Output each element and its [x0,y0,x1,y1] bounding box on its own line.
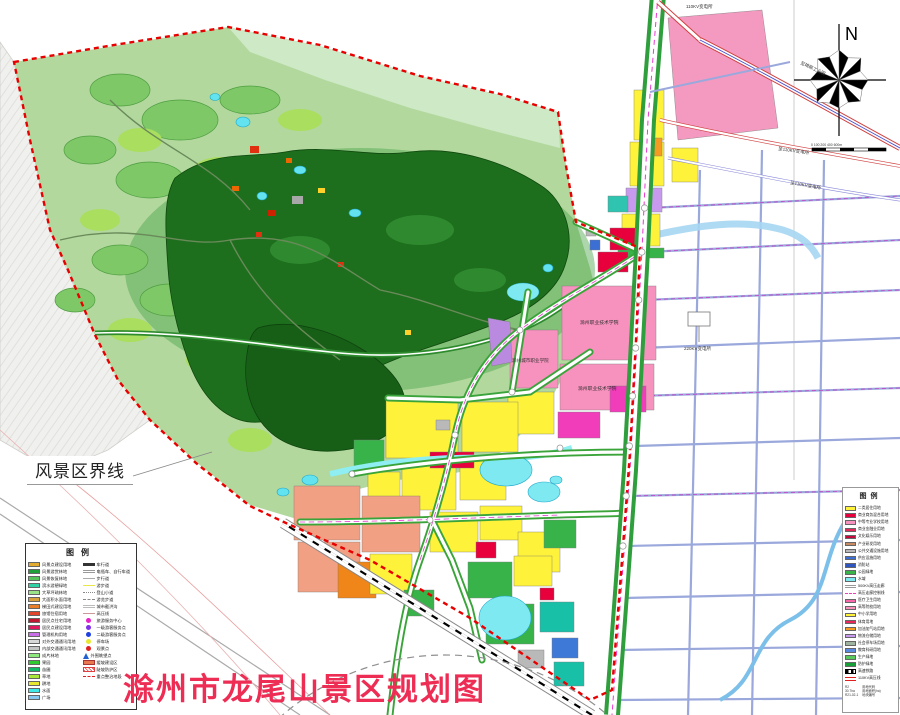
legend-swatch [845,677,856,681]
label-college-2: 滁州职业技术学院 [578,385,617,392]
legend-swatch [28,562,40,567]
legend-item: 管理机构用地 [28,631,80,638]
legend-swatch [845,528,856,533]
legend-swatch [845,641,856,646]
legend-item: 步行道 [83,575,135,582]
legend-swatch [28,569,40,574]
legend-swatch [845,506,856,511]
legend-item-label: 物流仓储用地 [858,634,881,639]
legend-item-label: 游步道 [97,583,110,589]
legend-item-label: 生产绿地 [858,655,873,660]
legend-item: 大面积水面用地 [28,596,80,603]
legend-item: 一级游客服务点 [83,624,135,631]
legend-swatch [28,667,40,672]
substation-box [688,312,710,342]
legend-landuse-title: 图例 [845,489,896,505]
legend-item: 物流仓储用地 [845,633,896,640]
legend-swatch [28,639,40,644]
legend-swatch [28,576,40,581]
legend-item-label: 公共交通设施用地 [858,549,888,554]
legend-item-label: 耕地 [42,681,50,687]
legend-item: 公共交通设施用地 [845,548,896,555]
legend-item: 高速铁路 [845,668,896,675]
legend-item: 果园 [28,659,80,666]
legend-item: 高等院校用地 [845,604,896,611]
legend-swatch [83,605,95,609]
legend-swatch [86,618,91,623]
legend-swatch [845,627,856,632]
legend-swatch [83,667,95,672]
legend-item: 500KV高压走廊 [845,583,896,590]
legend-swatch [845,585,856,589]
legend-item-label: 产业研发用地 [858,542,881,547]
legend-swatch [845,606,856,611]
legend-swatch [86,625,91,630]
label-city-college: 滁州城市职业学院 [512,357,549,364]
legend-item: 居民点建设用地 [28,624,80,631]
legend-item: 登山小道 [83,589,135,596]
legend-item-label: 水域 [858,577,866,582]
legend-item: 高压线 [83,610,135,617]
legend-item: 商业商务混合用地 [845,512,896,519]
legend-swatch [28,590,40,595]
compass-rose [794,24,886,136]
legend-item-label: 大草坪疏林地 [42,590,67,596]
legend-swatch [845,542,856,547]
legend-item-label: 对外交通通讯用地 [42,639,76,645]
legend-item-label: 广场 [42,695,50,701]
legend-item-label: 中小学用地 [858,612,877,617]
legend-item-label: 医疗卫生用地 [858,598,881,603]
legend-item-label: 风景游赏林地 [42,569,67,575]
page-title: 滁州市龙尾山景区规划图 [123,664,486,709]
legend-item-label: 居民点住宅用地 [42,618,71,624]
legend-item: 中小学用地 [845,611,896,618]
legend-item: 梯田式建设用地 [28,603,80,610]
legend-item-label: 旅游服务中心 [97,618,122,624]
legend-item-label: 文化娱乐用地 [858,534,881,539]
legend-swatch [28,653,40,658]
legend-landuse-panel: 图例 二类居住用地 商业商务混合用地 中等专业学校用地 商业金融业用地 文化娱乐… [842,487,899,713]
legend-item: 文化娱乐用地 [845,533,896,540]
legend-swatch [83,578,95,580]
legend-swatch [83,592,95,593]
legend-item-label: 停车场 [97,639,110,645]
legend-swatch [83,563,95,566]
legend-item: 社会停车场用地 [845,640,896,647]
legend-swatch [845,520,856,525]
legend-swatch [845,577,856,582]
legend-item: 观景点 [83,645,135,652]
label-college-1: 滁州职业技术学院 [580,319,619,326]
legend-item-label: 大面积水面用地 [42,597,71,603]
legend-item-label: 城市截洪沟 [97,604,118,610]
legend-item-label: 成片林地 [42,653,59,659]
legend-item-label: 水面 [42,688,50,694]
legend-item-label: 草地 [42,674,50,680]
legend-note-desc: 用地代码 用地面积(ha) 地块编号 [862,685,880,697]
boundary-callout: 风景区界线 [27,456,133,485]
legend-item: 防护绿地 [845,661,896,668]
legend-item-label: 高压走廊控制线 [858,591,885,596]
legend-item: 城市截洪沟 [83,603,135,610]
legend-item-label: 社会停车场用地 [858,641,885,646]
legend-swatch [28,583,40,588]
legend-item-label: 旅馆住宿用地 [42,611,67,617]
legend-item-label: 供应设施用地 [858,556,881,561]
scale-bar [812,148,886,151]
legend-item-label: 公园绿地 [858,570,873,575]
legend-swatch [83,676,95,677]
legend-item: 大草坪疏林地 [28,589,80,596]
legend-item: 成片林地 [28,652,80,659]
legend-item: 耕地 [28,680,80,687]
legend-item: 游览步道 [83,596,135,603]
legend-swatch [28,646,40,651]
label-220kv-substation: 220KV变电所 [684,345,712,352]
legend-item: 游步道 [83,582,135,589]
legend-item: 对外交通通讯用地 [28,638,80,645]
legend-item: 水面 [28,687,80,694]
legend-note: R2 30.7ha R21-02-1 用地代码 用地面积(ha) 地块编号 [845,685,896,697]
legend-item: 风景点建设用地 [28,561,80,568]
legend-swatch [83,585,95,587]
legend-item-label: 登山小道 [97,590,114,596]
legend-swatch [845,634,856,639]
legend-item-label: 风景点建设用地 [42,562,71,568]
legend-swatch [845,599,856,604]
legend-swatch [28,688,40,693]
legend-item: 旅游服务中心 [83,617,135,624]
legend-item: 体育用地 [845,619,896,626]
legend-swatch [83,660,95,665]
legend-note-sample: R2 30.7ha R21-02-1 [845,685,858,697]
legend-item-label: 中等专业学校用地 [858,520,888,525]
legend-item-label: 苗圃 [42,667,50,673]
legend-item: 水域 [845,576,896,583]
legend-scenic-panel: 图例 风景点建设用地 风景游赏林地 风景恢复林地 滨水游憩绿地 大草坪疏林地 [25,543,137,710]
legend-item-label: 高速铁路 [858,669,873,674]
legend-item: 生产绿地 [845,654,896,661]
legend-item: 电瓶车、自行车道 [83,568,135,575]
legend-item: 旅馆住宿用地 [28,610,80,617]
legend-swatch [28,611,40,616]
legend-item: 苗圃 [28,666,80,673]
legend-item-label: 二级游客服务点 [97,632,126,638]
legend-item-label: 110KV高压线 [858,676,881,681]
legend-scenic-col1: 风景点建设用地 风景游赏林地 风景恢复林地 滨水游憩绿地 大草坪疏林地 大面积水… [28,561,80,701]
legend-item-label: 消防站 [858,563,869,568]
legend-item-label: 滨水游憩绿地 [42,583,67,589]
legend-swatch [845,662,856,667]
legend-swatch [28,674,40,679]
label-110kv-substation: 110KV变电所 [686,3,713,10]
legend-item-label: 重点整治地段 [97,674,122,680]
legend-item-label: 果园 [42,660,50,666]
legend-item: 产业研发用地 [845,540,896,547]
legend-swatch [28,625,40,630]
legend-item-label: 管理机构用地 [42,632,67,638]
legend-item-label: 高等院校用地 [858,605,881,610]
legend-item-label: 商业金融业用地 [858,527,885,532]
legend-item-label: 梯田式建设用地 [42,604,71,610]
legend-swatch [845,593,856,594]
legend-swatch [28,618,40,623]
label-to-110kv-b: 至110KV变电所 [790,179,822,191]
legend-swatch [83,599,95,600]
legend-item: 风景恢复林地 [28,575,80,582]
legend-item-label: 风景恢复林地 [42,576,67,582]
legend-swatch [845,613,856,618]
legend-item: 广场 [28,694,80,701]
east-river [720,520,846,700]
legend-swatch [86,632,91,637]
legend-swatch [83,653,89,659]
legend-item: 公园绿地 [845,569,896,576]
legend-scenic-title: 图例 [28,545,134,561]
legend-item: 内部交通通讯用地 [28,645,80,652]
scale-bar-ticks: 0 100 200 400 600m [811,143,842,147]
legend-item: 风景游赏林地 [28,568,80,575]
legend-item: 外围眺望点 [83,652,135,659]
legend-item: 车行道 [83,561,135,568]
legend-item-label: 步行道 [97,576,110,582]
legend-item: 高压走廊控制线 [845,590,896,597]
legend-swatch [86,646,91,651]
legend-item-label: 教育科研用地 [858,648,881,653]
legend-item: 消防站 [845,562,896,569]
legend-swatch [83,570,95,574]
legend-swatch [845,563,856,568]
legend-item: 滨水游憩绿地 [28,582,80,589]
legend-swatch [845,549,856,554]
legend-item-label: 体育用地 [858,620,873,625]
legend-item-label: 车行道 [97,562,110,568]
legend-item-label: 二类居住用地 [858,506,881,511]
legend-swatch [28,681,40,686]
legend-item-label: 加油加气站用地 [858,627,885,632]
legend-item: 二级游客服务点 [83,631,135,638]
legend-item-label: 内部交通通讯用地 [42,646,76,652]
legend-item: 医疗卫生用地 [845,597,896,604]
legend-item-label: 500KV高压走廊 [858,584,885,589]
legend-item-label: 陡坡防护区 [97,667,118,673]
legend-item: 二类居住用地 [845,505,896,512]
legend-swatch [845,620,856,625]
legend-swatch [845,570,856,575]
legend-item-label: 电瓶车、自行车道 [97,569,131,575]
legend-item: 教育科研用地 [845,647,896,654]
legend-swatch [28,632,40,637]
legend-swatch [28,695,40,700]
legend-item-label: 一级游客服务点 [97,625,126,631]
legend-item-label: 居民点建设用地 [42,625,71,631]
legend-landuse-items: 二类居住用地 商业商务混合用地 中等专业学校用地 商业金融业用地 文化娱乐用地 … [845,505,896,682]
legend-swatch [28,604,40,609]
legend-item-label: 商业商务混合用地 [858,513,888,518]
legend-item-label: 游览步道 [97,597,114,603]
legend-item: 加油加气站用地 [845,626,896,633]
legend-swatch [845,513,856,518]
legend-swatch [28,660,40,665]
legend-item: 中等专业学校用地 [845,519,896,526]
compass-north-label: N [845,24,858,44]
legend-item-label: 高压线 [97,611,110,617]
legend-item: 110KV高压线 [845,675,896,682]
legend-item: 停车场 [83,638,135,645]
legend-item-label: 缓坡建设区 [97,660,118,666]
legend-swatch [845,669,856,674]
legend-swatch [845,535,856,540]
legend-item: 居民点住宅用地 [28,617,80,624]
legend-swatch [86,639,91,644]
legend-swatch [83,613,95,615]
legend-item-label: 观景点 [97,646,110,652]
legend-item: 草地 [28,673,80,680]
legend-item-label: 防护绿地 [858,662,873,667]
legend-item: 供应设施用地 [845,555,896,562]
legend-item-label: 外围眺望点 [91,653,112,659]
legend-swatch [845,556,856,561]
legend-swatch [845,648,856,653]
legend-item: 商业金融业用地 [845,526,896,533]
legend-swatch [845,655,856,660]
legend-swatch [28,597,40,602]
